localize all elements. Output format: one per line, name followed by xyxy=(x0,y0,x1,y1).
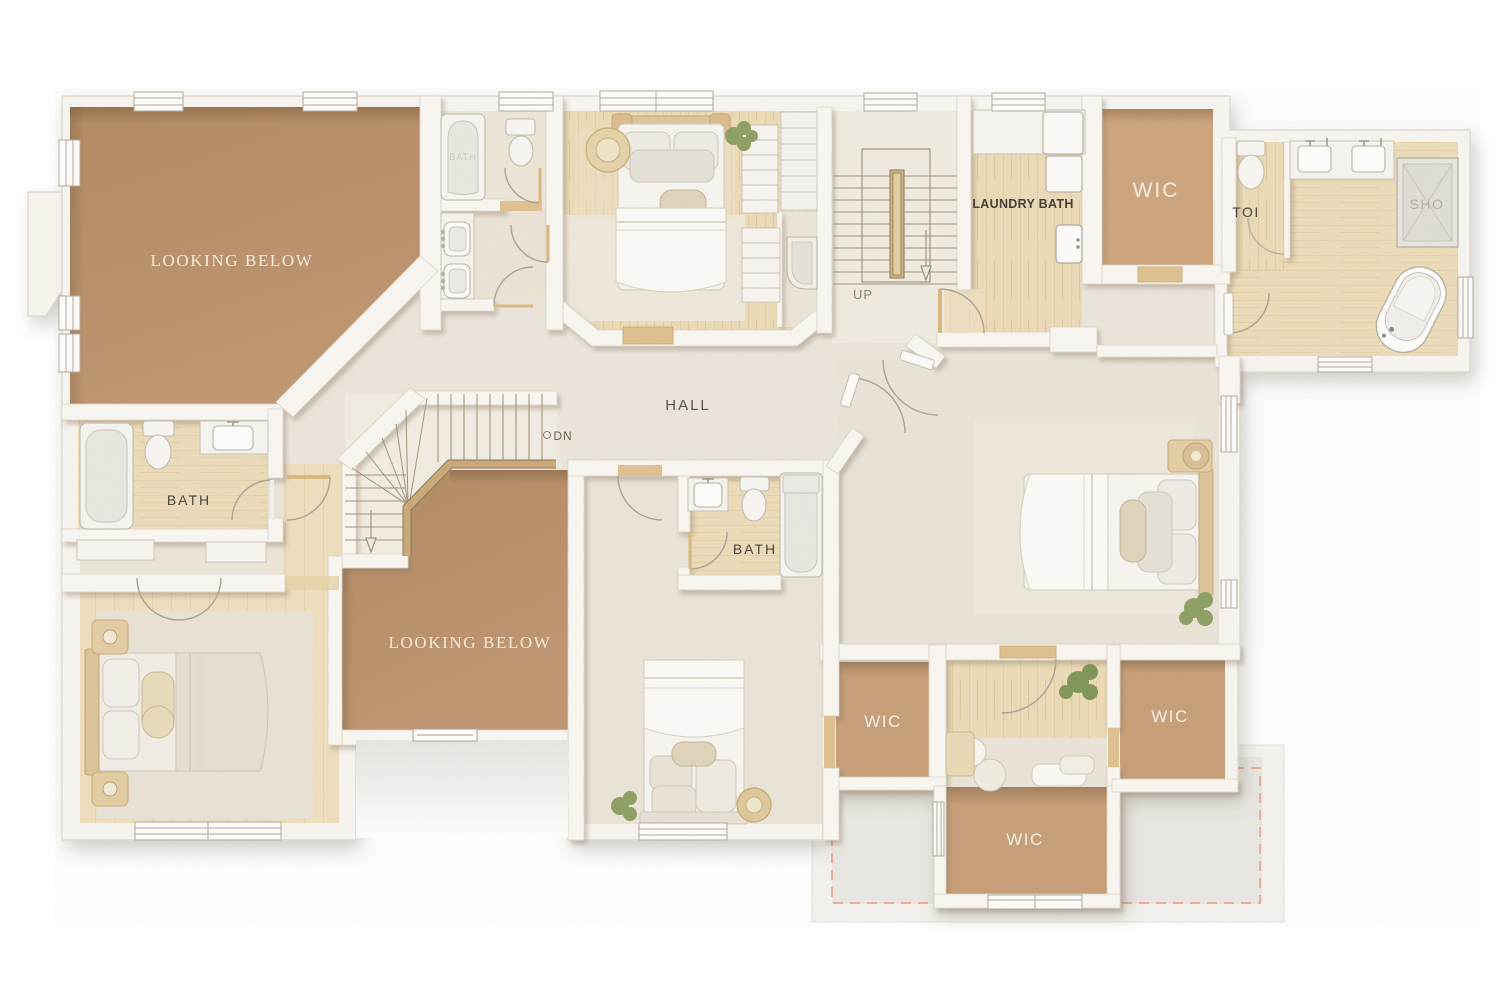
svg-text:HALL: HALL xyxy=(665,397,711,414)
svg-text:WIC: WIC xyxy=(864,712,902,731)
svg-text:DN: DN xyxy=(553,429,572,443)
svg-text:WIC: WIC xyxy=(1006,830,1044,849)
svg-text:TOI: TOI xyxy=(1232,204,1260,220)
svg-text:LOOKING BELOW: LOOKING BELOW xyxy=(389,633,552,652)
svg-text:LOOKING BELOW: LOOKING BELOW xyxy=(151,251,314,270)
svg-text:UP: UP xyxy=(853,287,873,302)
svg-text:BATH: BATH xyxy=(167,492,211,508)
svg-text:WIC: WIC xyxy=(1151,707,1189,726)
svg-text:WIC: WIC xyxy=(1133,179,1180,202)
svg-text:SHO: SHO xyxy=(1410,196,1445,212)
svg-text:BATH: BATH xyxy=(449,152,476,162)
svg-text:BATH: BATH xyxy=(733,541,777,557)
svg-text:LAUNDRY BATH: LAUNDRY BATH xyxy=(972,197,1073,211)
